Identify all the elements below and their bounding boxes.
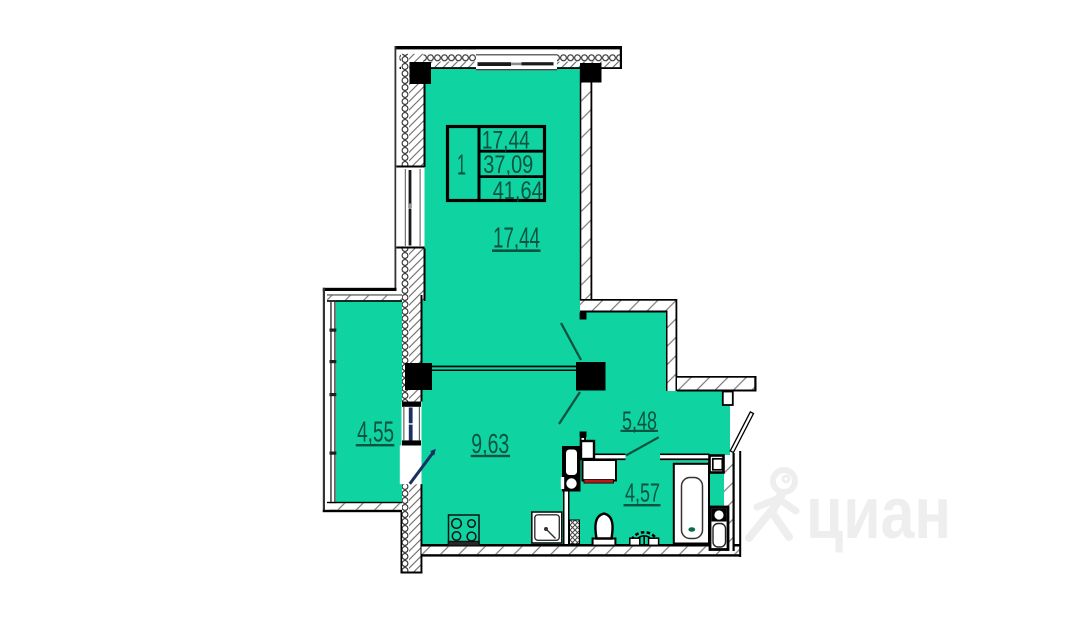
- svg-text:4,57: 4,57: [625, 478, 660, 508]
- svg-text:9,63: 9,63: [471, 428, 509, 459]
- svg-text:41,64: 41,64: [493, 177, 543, 205]
- svg-text:4,55: 4,55: [357, 417, 394, 449]
- svg-text:37,09: 37,09: [483, 151, 533, 179]
- svg-text:1: 1: [457, 150, 466, 182]
- svg-text:циан: циан: [806, 473, 951, 554]
